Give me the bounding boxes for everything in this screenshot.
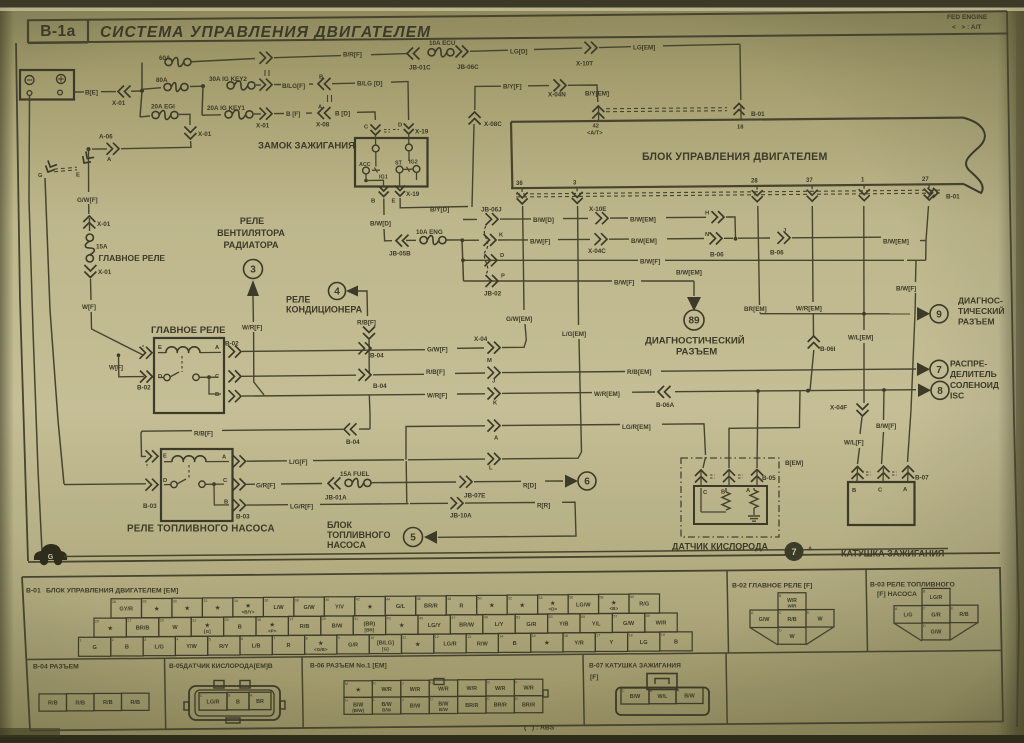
svg-text:B/Y[F]: B/Y[F]	[503, 84, 522, 91]
svg-text:B-07: B-07	[915, 475, 929, 482]
svg-text:27: 27	[127, 619, 131, 623]
svg-text:РАЗЪЕМ: РАЗЪЕМ	[676, 347, 717, 358]
svg-text:60: 60	[630, 595, 634, 599]
svg-text:B: B	[215, 392, 219, 398]
svg-text:W/L[F]: W/L[F]	[844, 440, 864, 447]
svg-text:X-08C: X-08C	[484, 121, 502, 128]
svg-text:33: 33	[225, 618, 229, 622]
svg-text:89: 89	[688, 316, 700, 327]
svg-text:ГЛАВНОЕ РЕЛЕ: ГЛАВНОЕ РЕЛЕ	[151, 325, 225, 336]
svg-text:10A ENG: 10A ENG	[416, 229, 443, 236]
svg-text:X-01: X-01	[198, 131, 212, 138]
svg-text:15A: 15A	[96, 244, 108, 251]
svg-text:W/R: W/R	[656, 621, 667, 627]
svg-text:B-07 КАТУШКА ЗАЖИГАНИЯ: B-07 КАТУШКА ЗАЖИГАНИЯ	[589, 663, 681, 670]
svg-text:9: 9	[936, 309, 942, 320]
svg-text:B-04: B-04	[373, 383, 387, 390]
svg-text:B: B	[236, 699, 240, 705]
svg-text:B-03 РЕЛЕ ТОПЛИВНОГО: B-03 РЕЛЕ ТОПЛИВНОГО	[870, 582, 955, 589]
svg-text:B-01: B-01	[751, 111, 765, 118]
svg-text:B-02: B-02	[225, 341, 239, 348]
svg-text:R/B: R/B	[130, 700, 140, 706]
svg-text:B/W[F]: B/W[F]	[896, 286, 916, 293]
svg-text:LG[D]: LG[D]	[510, 49, 528, 56]
svg-text:B/W[D]: B/W[D]	[370, 221, 391, 228]
svg-text:[F]: [F]	[590, 674, 598, 681]
svg-text:B/W[D]: B/W[D]	[533, 217, 554, 224]
svg-text:8: 8	[306, 636, 308, 640]
svg-text:G/W: G/W	[623, 621, 635, 627]
svg-text:B-01: B-01	[946, 194, 960, 201]
svg-text:Y/L: Y/L	[592, 621, 601, 627]
svg-text:E: E	[392, 199, 396, 205]
svg-text:L/B: L/B	[252, 643, 261, 649]
svg-text:BR/R: BR/R	[522, 702, 535, 708]
svg-text:W[F]: W[F]	[109, 365, 123, 372]
svg-text:X-10T: X-10T	[576, 61, 593, 68]
svg-text:<P>: <P>	[268, 628, 277, 633]
svg-text:ДИАГНОСТИЧЕСКИЙ: ДИАГНОСТИЧЕСКИЙ	[645, 335, 745, 347]
svg-text:X-19: X-19	[415, 129, 429, 136]
svg-text:B/W[EM]: B/W[EM]	[630, 217, 656, 224]
svg-text:РЕЛЕ: РЕЛЕ	[286, 295, 310, 305]
svg-text:6: 6	[584, 477, 590, 488]
svg-text:5: 5	[410, 533, 416, 544]
svg-text:B-03: B-03	[143, 503, 157, 510]
svg-text:L/G[EM]: L/G[EM]	[562, 331, 586, 338]
svg-text:20A EGI: 20A EGI	[151, 104, 175, 111]
svg-text:W/R: W/R	[467, 686, 478, 692]
svg-text:D: D	[163, 478, 167, 484]
svg-text:M: M	[487, 358, 492, 364]
svg-text:B/W[EM]: B/W[EM]	[631, 238, 657, 245]
svg-text:JB-07E: JB-07E	[464, 493, 485, 500]
svg-text:РАДИАТОРА: РАДИАТОРА	[224, 240, 279, 250]
svg-text:30: 30	[173, 599, 177, 603]
svg-text:10: 10	[370, 636, 374, 640]
svg-text:J: J	[402, 681, 404, 685]
svg-text:B: B	[371, 199, 375, 205]
svg-text:B-06 РАЗЪЕМ No.1 [EM]: B-06 РАЗЪЕМ No.1 [EM]	[310, 663, 387, 670]
svg-text:G/R[F]: G/R[F]	[256, 483, 275, 490]
svg-text:★: ★	[355, 687, 361, 693]
svg-text:<B/Y>: <B/Y>	[242, 609, 255, 614]
svg-text:X-10E: X-10E	[589, 206, 607, 213]
svg-text:B/W[EM]: B/W[EM]	[676, 270, 702, 277]
svg-text:P: P	[501, 274, 505, 280]
svg-text:B/Y[D]: B/Y[D]	[430, 207, 449, 214]
svg-text:B/W[F]: B/W[F]	[876, 423, 896, 430]
svg-text:42: 42	[356, 598, 360, 602]
svg-text:D: D	[500, 253, 504, 259]
svg-text:B: B	[238, 625, 242, 631]
svg-text:B/W: B/W	[630, 694, 641, 700]
svg-text:LG/R: LG/R	[443, 642, 456, 648]
svg-text:X-01: X-01	[98, 269, 112, 276]
svg-text:ТИЧЕСКИЙ: ТИЧЕСКИЙ	[958, 305, 1005, 316]
svg-text:37: 37	[806, 178, 813, 184]
svg-text:JB-06C: JB-06C	[457, 64, 479, 71]
svg-text:4: 4	[176, 638, 178, 642]
svg-text:W/R[EM]: W/R[EM]	[594, 391, 620, 398]
svg-text:L: L	[489, 466, 493, 472]
svg-text:B/W: B/W	[439, 707, 449, 712]
svg-text:ДЕЛИТЕЛЬ: ДЕЛИТЕЛЬ	[950, 369, 997, 379]
svg-text:R/B: R/B	[48, 701, 58, 707]
svg-text:4: 4	[334, 287, 340, 298]
svg-text:B: B	[721, 490, 725, 496]
svg-text:28: 28	[751, 179, 758, 185]
svg-text:LG/R[EM]: LG/R[EM]	[622, 424, 651, 431]
svg-text:BR/W: BR/W	[459, 623, 475, 629]
svg-text:C: C	[779, 611, 782, 615]
svg-text:B-04: B-04	[346, 439, 360, 446]
svg-text:R/B: R/B	[300, 624, 310, 630]
svg-text:LG/R: LG/R	[207, 700, 220, 706]
svg-text:11: 11	[403, 635, 407, 639]
svg-text:X-01: X-01	[112, 100, 126, 107]
svg-text:2: 2	[112, 638, 114, 642]
svg-text:X-04C: X-04C	[588, 248, 606, 255]
svg-text:B/R[F]: B/R[F]	[343, 52, 362, 59]
svg-text:B: B	[674, 640, 678, 646]
svg-text:L/W: L/W	[273, 605, 284, 611]
svg-text:BR: BR	[256, 699, 264, 705]
svg-text:L/Y: L/Y	[495, 622, 504, 628]
svg-text:LG[EM]: LG[EM]	[633, 45, 655, 52]
svg-text:1: 1	[80, 638, 82, 642]
svg-text:B-02 ГЛАВНОЕ РЕЛЕ [F]: B-02 ГЛАВНОЕ РЕЛЕ [F]	[732, 583, 812, 590]
svg-text:19: 19	[661, 633, 665, 637]
svg-text:15A FUEL: 15A FUEL	[340, 471, 370, 478]
svg-text:15: 15	[532, 634, 536, 638]
svg-text:РЕЛЕ ТОПЛИВНОГО НАСОСА: РЕЛЕ ТОПЛИВНОГО НАСОСА	[127, 524, 275, 535]
svg-text:R/W: R/W	[477, 641, 489, 647]
svg-text:R: R	[286, 643, 290, 649]
svg-text:X-04F: X-04F	[830, 405, 847, 412]
svg-text:G: G	[93, 645, 97, 651]
svg-text:H: H	[345, 699, 348, 703]
svg-text:G/W[F]: G/W[F]	[77, 197, 98, 204]
svg-text:IG2: IG2	[409, 160, 418, 166]
svg-text:43: 43	[387, 617, 391, 621]
svg-text:BR/R: BR/R	[494, 703, 507, 709]
svg-text:R/Y: R/Y	[219, 644, 229, 650]
svg-text:C: C	[487, 697, 490, 701]
svg-text:R/B: R/B	[75, 700, 85, 706]
svg-text:34: 34	[234, 599, 238, 603]
svg-text:R[D]: R[D]	[523, 483, 536, 490]
svg-text:B/W[F]: B/W[F]	[530, 238, 550, 245]
svg-text:B/W[F]: B/W[F]	[640, 259, 660, 266]
svg-text:G/R: G/R	[348, 643, 358, 649]
svg-text:КАТУШКА ЗАЖИГАНИЯ: КАТУШКА ЗАЖИГАНИЯ	[841, 549, 944, 559]
svg-text:B/W: B/W	[332, 624, 344, 630]
svg-text:6: 6	[241, 637, 243, 641]
svg-text:G/W[EM]: G/W[EM]	[506, 316, 532, 323]
svg-text:B [F]: B [F]	[286, 111, 300, 118]
svg-text:(B/W): (B/W)	[352, 708, 364, 713]
svg-text:B-1a: B-1a	[40, 23, 76, 40]
svg-text:7: 7	[936, 365, 942, 376]
svg-text:Y: Y	[610, 640, 614, 646]
svg-text:28: 28	[143, 600, 147, 604]
svg-text:РАСПРЕ-: РАСПРЕ-	[950, 359, 987, 369]
svg-text:40: 40	[325, 598, 329, 602]
svg-text:W: W	[172, 625, 178, 631]
svg-text:НАСОСА: НАСОСА	[327, 540, 366, 550]
svg-text:W/R: W/R	[438, 687, 449, 693]
svg-text:B/W: B/W	[684, 694, 695, 700]
svg-text:R/G: R/G	[639, 602, 649, 608]
svg-text:N: N	[705, 232, 709, 238]
svg-text:9: 9	[338, 636, 340, 640]
svg-text:B: B	[852, 488, 856, 494]
svg-text:JB-02: JB-02	[484, 291, 502, 298]
svg-text:A-06: A-06	[99, 134, 113, 141]
svg-text:45: 45	[419, 616, 423, 620]
svg-text:[G]: [G]	[204, 629, 211, 634]
svg-text:Y/W: Y/W	[186, 644, 197, 650]
svg-text:ISC: ISC	[950, 391, 964, 401]
svg-text:R/B[F]: R/B[F]	[426, 369, 445, 376]
svg-text:БЛОК УПРАВЛЕНИЯ ДВИГАТЕЛЕМ [EM: БЛОК УПРАВЛЕНИЯ ДВИГАТЕЛЕМ [EM]	[46, 588, 178, 595]
svg-text:49: 49	[484, 616, 488, 620]
svg-text:E: E	[163, 454, 167, 460]
svg-text:53: 53	[549, 615, 553, 619]
svg-text:3: 3	[144, 638, 146, 642]
svg-text:3: 3	[250, 265, 256, 276]
svg-text:7: 7	[273, 637, 275, 641]
svg-text:R/B: R/B	[959, 612, 968, 618]
svg-text:<G/B>: <G/B>	[314, 647, 328, 652]
svg-text:56: 56	[569, 596, 573, 600]
svg-text:Y/B: Y/B	[559, 622, 568, 628]
svg-text:R/B: R/B	[787, 617, 796, 623]
svg-text:ТОПЛИВНОГО: ТОПЛИВНОГО	[327, 530, 391, 540]
svg-text:РАЗЪЕМ: РАЗЪЕМ	[958, 317, 995, 327]
svg-text:W/R[EM]: W/R[EM]	[796, 306, 822, 313]
svg-text:W[F]: W[F]	[82, 304, 96, 311]
svg-text:E: E	[158, 345, 162, 351]
svg-text:КОНДИЦИОНЕРА: КОНДИЦИОНЕРА	[286, 305, 363, 315]
svg-text:R/B: R/B	[103, 700, 113, 706]
svg-text:L: L	[373, 698, 375, 702]
svg-text:18: 18	[629, 633, 633, 637]
svg-text:H: H	[430, 681, 433, 685]
svg-text:D: D	[923, 624, 926, 628]
svg-text:W/L: W/L	[658, 694, 669, 700]
svg-text:BR/R: BR/R	[424, 604, 438, 610]
svg-text:X-04: X-04	[474, 336, 488, 343]
svg-text:ДАТЧИК КИСЛОРОДА: ДАТЧИК КИСЛОРОДА	[672, 542, 768, 552]
svg-text:X-01: X-01	[97, 221, 111, 228]
svg-text:B-04: B-04	[370, 352, 384, 359]
svg-text:G/W: G/W	[304, 605, 316, 611]
svg-text:B-05: B-05	[762, 475, 776, 482]
svg-text:16: 16	[564, 634, 568, 638]
svg-text:JB-10A: JB-10A	[450, 513, 472, 520]
svg-text:D: D	[398, 123, 402, 129]
svg-text:Y/V: Y/V	[335, 605, 344, 611]
svg-text:Y/R: Y/R	[574, 640, 583, 646]
svg-text:57: 57	[613, 615, 617, 619]
svg-text:<A/T>: <A/T>	[587, 131, 603, 137]
svg-text:25: 25	[95, 619, 99, 623]
svg-text:B/LG [D]: B/LG [D]	[357, 80, 383, 87]
svg-text:41: 41	[354, 617, 358, 621]
svg-text:LG/R: LG/R	[930, 595, 943, 601]
svg-text:58: 58	[600, 595, 604, 599]
svg-text:36: 36	[264, 599, 268, 603]
svg-text:L/G: L/G	[155, 644, 164, 650]
svg-text:29: 29	[160, 619, 164, 623]
svg-text:B-06I: B-06I	[820, 346, 836, 353]
svg-text:GY/R: GY/R	[119, 607, 133, 613]
svg-text:52: 52	[508, 596, 512, 600]
svg-text:ДИАГНОС-: ДИАГНОС-	[958, 296, 1003, 306]
svg-text:<D>: <D>	[548, 607, 557, 612]
svg-text:B: B	[125, 645, 129, 651]
svg-text:37: 37	[289, 618, 293, 622]
svg-text:M: M	[345, 682, 348, 686]
svg-text:W/R: W/R	[788, 603, 798, 608]
svg-text:LG/R[F]: LG/R[F]	[290, 504, 313, 511]
svg-text:W/R: W/R	[523, 686, 534, 692]
svg-text:44: 44	[386, 597, 390, 601]
svg-text:( ) : ABS: ( ) : ABS	[524, 725, 555, 732]
svg-text:B-04 РАЗЪЕМ: B-04 РАЗЪЕМ	[33, 664, 79, 671]
svg-text:<B>: <B>	[609, 606, 618, 611]
svg-text:B/W: B/W	[382, 708, 392, 713]
svg-text:17: 17	[596, 634, 600, 638]
svg-text:B-06: B-06	[770, 250, 784, 257]
svg-text:W/R: W/R	[495, 686, 506, 692]
svg-text:G/W: G/W	[931, 630, 943, 636]
svg-text:G/W[F]: G/W[F]	[427, 347, 448, 354]
svg-text:36: 36	[516, 181, 523, 187]
svg-text:J: J	[492, 379, 495, 385]
svg-text:C: C	[923, 607, 926, 611]
svg-text:35: 35	[257, 618, 261, 622]
svg-text:G/L: G/L	[396, 604, 406, 610]
svg-text:РЕЛЕ: РЕЛЕ	[240, 216, 264, 226]
svg-text:IG1: IG1	[379, 175, 388, 181]
svg-text:B[EM]: B[EM]	[785, 460, 803, 467]
svg-text:W/R: W/R	[410, 687, 421, 693]
svg-text:BR/B: BR/B	[136, 626, 150, 632]
svg-text:< > : A/T: < > : A/T	[952, 24, 981, 31]
svg-text:47: 47	[451, 616, 455, 620]
svg-text:X-08: X-08	[316, 122, 330, 129]
svg-text:B/LG[F]: B/LG[F]	[282, 83, 305, 90]
svg-text:R/B[F]: R/B[F]	[194, 431, 213, 438]
svg-text:БЛОК: БЛОК	[327, 520, 353, 530]
svg-text:42: 42	[593, 124, 599, 130]
svg-text:55: 55	[581, 615, 585, 619]
svg-text:B: B	[513, 641, 517, 647]
svg-text:X-04N: X-04N	[548, 92, 566, 99]
svg-text:59: 59	[646, 614, 650, 618]
svg-text:BR[EM]: BR[EM]	[744, 306, 767, 313]
svg-text:13: 13	[467, 635, 471, 639]
svg-text:W/R[F]: W/R[F]	[242, 325, 262, 332]
svg-text:B[E]: B[E]	[85, 89, 98, 96]
svg-text:B-03: B-03	[236, 514, 250, 521]
svg-text:G: G	[487, 681, 490, 685]
svg-text:B [D]: B [D]	[335, 111, 350, 118]
svg-text:50: 50	[478, 597, 482, 601]
svg-text:БЛОК УПРАВЛЕНИЯ ДВИГАТЕЛЕМ: БЛОК УПРАВЛЕНИЯ ДВИГАТЕЛЕМ	[642, 151, 827, 163]
svg-text:B-02: B-02	[137, 385, 151, 392]
svg-text:J: J	[402, 698, 404, 702]
svg-text:51: 51	[516, 615, 520, 619]
svg-text:LG: LG	[640, 640, 648, 646]
svg-text:B/W: B/W	[410, 703, 421, 709]
svg-text:J: J	[783, 228, 786, 234]
svg-text:[G]: [G]	[382, 646, 389, 651]
svg-text:G/R: G/R	[526, 622, 536, 628]
svg-text:D: D	[779, 628, 782, 632]
svg-text:B-06A: B-06A	[656, 402, 675, 409]
svg-text:JB-01A: JB-01A	[325, 495, 347, 502]
svg-text:10A ECU: 10A ECU	[429, 40, 456, 47]
svg-text:B/W[F]: B/W[F]	[614, 279, 634, 286]
svg-text:12: 12	[435, 635, 439, 639]
svg-text:5: 5	[209, 637, 211, 641]
svg-text:JB-05B: JB-05B	[389, 251, 411, 258]
svg-text:14: 14	[499, 635, 503, 639]
svg-text:8: 8	[937, 386, 943, 397]
svg-text:46: 46	[417, 597, 421, 601]
svg-text:C: C	[200, 694, 203, 698]
svg-text:B/W[EM]: B/W[EM]	[883, 239, 909, 246]
svg-text:СИСТЕМА УПРАВЛЕНИЯ ДВИГАТЕЛЕМ: СИСТЕМА УПРАВЛЕНИЯ ДВИГАТЕЛЕМ	[100, 24, 431, 41]
svg-text:L/G: L/G	[904, 613, 913, 619]
svg-text:W/L[EM]: W/L[EM]	[848, 335, 873, 342]
svg-text:B-05ДАТЧИК КИСЛОРОДА[EM]B: B-05ДАТЧИК КИСЛОРОДА[EM]B	[169, 663, 273, 670]
svg-text:X-01: X-01	[256, 123, 270, 130]
svg-text:BR/R: BR/R	[465, 703, 478, 709]
svg-text:[F] НАСОСА: [F] НАСОСА	[877, 591, 917, 598]
svg-text:48: 48	[447, 597, 451, 601]
svg-text:39: 39	[322, 617, 326, 621]
svg-text:R/B[EM]: R/B[EM]	[627, 369, 651, 376]
svg-text:B-06: B-06	[710, 252, 724, 259]
svg-text:СОЛЕНОИД: СОЛЕНОИД	[950, 380, 999, 390]
svg-text:G: G	[38, 173, 43, 179]
svg-text:W/R: W/R	[381, 687, 392, 693]
svg-text:E: E	[76, 173, 80, 179]
svg-text:26: 26	[112, 600, 116, 604]
svg-text:ВЕНТИЛЯТОРА: ВЕНТИЛЯТОРА	[217, 228, 285, 238]
svg-text:C: C	[622, 689, 625, 693]
svg-text:38: 38	[295, 598, 299, 602]
svg-text:G/W: G/W	[759, 617, 771, 623]
svg-text:LG/Y: LG/Y	[428, 623, 441, 629]
svg-text:JB-01C: JB-01C	[409, 65, 431, 72]
svg-text:ГЛАВНОЕ РЕЛЕ: ГЛАВНОЕ РЕЛЕ	[99, 253, 166, 263]
svg-text:R: R	[459, 603, 463, 609]
svg-text:JB-06J: JB-06J	[481, 207, 502, 214]
svg-text:G: G	[48, 554, 54, 561]
svg-text:32: 32	[203, 599, 207, 603]
svg-text:L/G[F]: L/G[F]	[289, 459, 308, 466]
svg-text:FED ENGINE: FED ENGINE	[947, 14, 988, 21]
svg-text:R/B[F]: R/B[F]	[357, 320, 376, 327]
svg-text:X-19: X-19	[406, 191, 420, 198]
svg-text:R[R]: R[R]	[537, 503, 550, 510]
